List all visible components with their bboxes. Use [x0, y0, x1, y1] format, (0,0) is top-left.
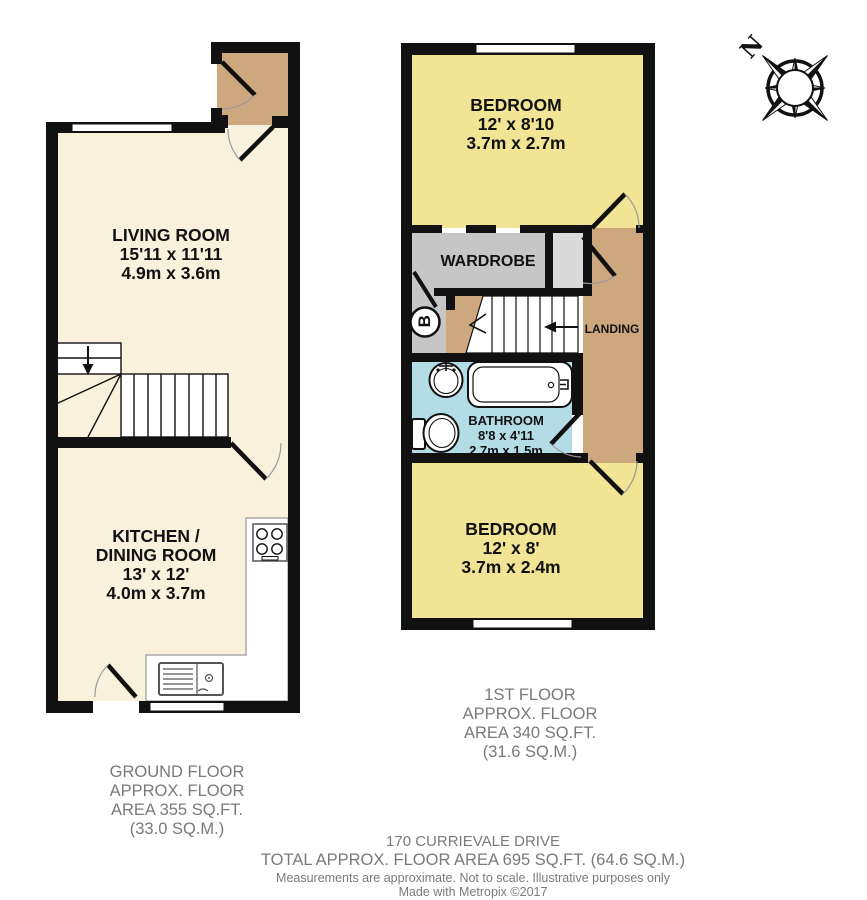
first-floor-stairs [466, 296, 578, 353]
room-dims-imperial: 15'11 x 11'11 [112, 245, 230, 264]
footer-total-area: TOTAL APPROX. FLOOR AREA 695 SQ.FT. (64.… [261, 851, 685, 870]
bathtub-icon [468, 362, 572, 407]
living-room-window [72, 124, 172, 132]
room-dims-imperial: 12' x 8' [461, 539, 560, 558]
bedroom-front-label: BEDROOM 12' x 8'10 3.7m x 2.7m [466, 96, 565, 153]
bathroom-label: BATHROOM 8'8 x 4'11 2.7m x 1.5m [468, 413, 544, 458]
room-name: BEDROOM [466, 96, 565, 115]
room-dims-metric: 3.7m x 2.7m [466, 134, 565, 153]
bedroom-back-label: BEDROOM 12' x 8' 3.7m x 2.4m [461, 520, 560, 577]
room-dims-imperial: 8'8 x 4'11 [468, 428, 544, 443]
room-dims-metric: 4.0m x 3.7m [96, 584, 217, 603]
living-room-label: LIVING ROOM 15'11 x 11'11 4.9m x 3.6m [112, 226, 230, 283]
room-name: BEDROOM [461, 520, 560, 539]
room-dims-metric: 4.9m x 3.6m [112, 264, 230, 283]
toilet-icon [412, 414, 459, 452]
kitchen-sink-icon [159, 663, 223, 695]
footer-disclaimer: Measurements are approximate. Not to sca… [276, 871, 670, 885]
floorplan-page: LIVING ROOM 15'11 x 11'11 4.9m x 3.6m KI… [0, 0, 867, 900]
room-name: LIVING ROOM [112, 226, 230, 245]
landing-label: LANDING [585, 320, 640, 339]
first-floor-area-label: 1ST FLOOR APPROX. FLOOR AREA 340 SQ.FT. … [463, 686, 598, 762]
bedroom-back-window [473, 620, 572, 629]
porch-floor [217, 53, 288, 125]
room-name-line1: KITCHEN / [96, 527, 217, 546]
room-name: BATHROOM [468, 413, 544, 428]
room-dims-metric: 2.7m x 1.5m [468, 443, 544, 458]
footer-address: 170 CURRIEVALE DRIVE [386, 833, 560, 850]
room-name-line2: DINING ROOM [96, 546, 217, 565]
room-dims-imperial: 12' x 8'10 [466, 115, 565, 134]
boiler-label: B [415, 315, 435, 327]
room-dims-metric: 3.7m x 2.4m [461, 558, 560, 577]
cupboard-floor [553, 233, 583, 288]
kitchen-label: KITCHEN / DINING ROOM 13' x 12' 4.0m x 3… [96, 527, 217, 603]
ground-floor-area-label: GROUND FLOOR APPROX. FLOOR AREA 355 SQ.F… [110, 763, 245, 839]
stove-icon [253, 524, 287, 561]
compass-rose-icon [763, 56, 828, 121]
bathroom-sink-icon [430, 363, 463, 397]
footer-credit: Made with Metropix ©2017 [399, 885, 548, 899]
wardrobe-label: WARDROBE [440, 252, 535, 271]
ground-floor-plan [46, 42, 300, 713]
room-dims-imperial: 13' x 12' [96, 565, 217, 584]
kitchen-window [150, 703, 224, 712]
bedroom-front-window [476, 45, 575, 54]
